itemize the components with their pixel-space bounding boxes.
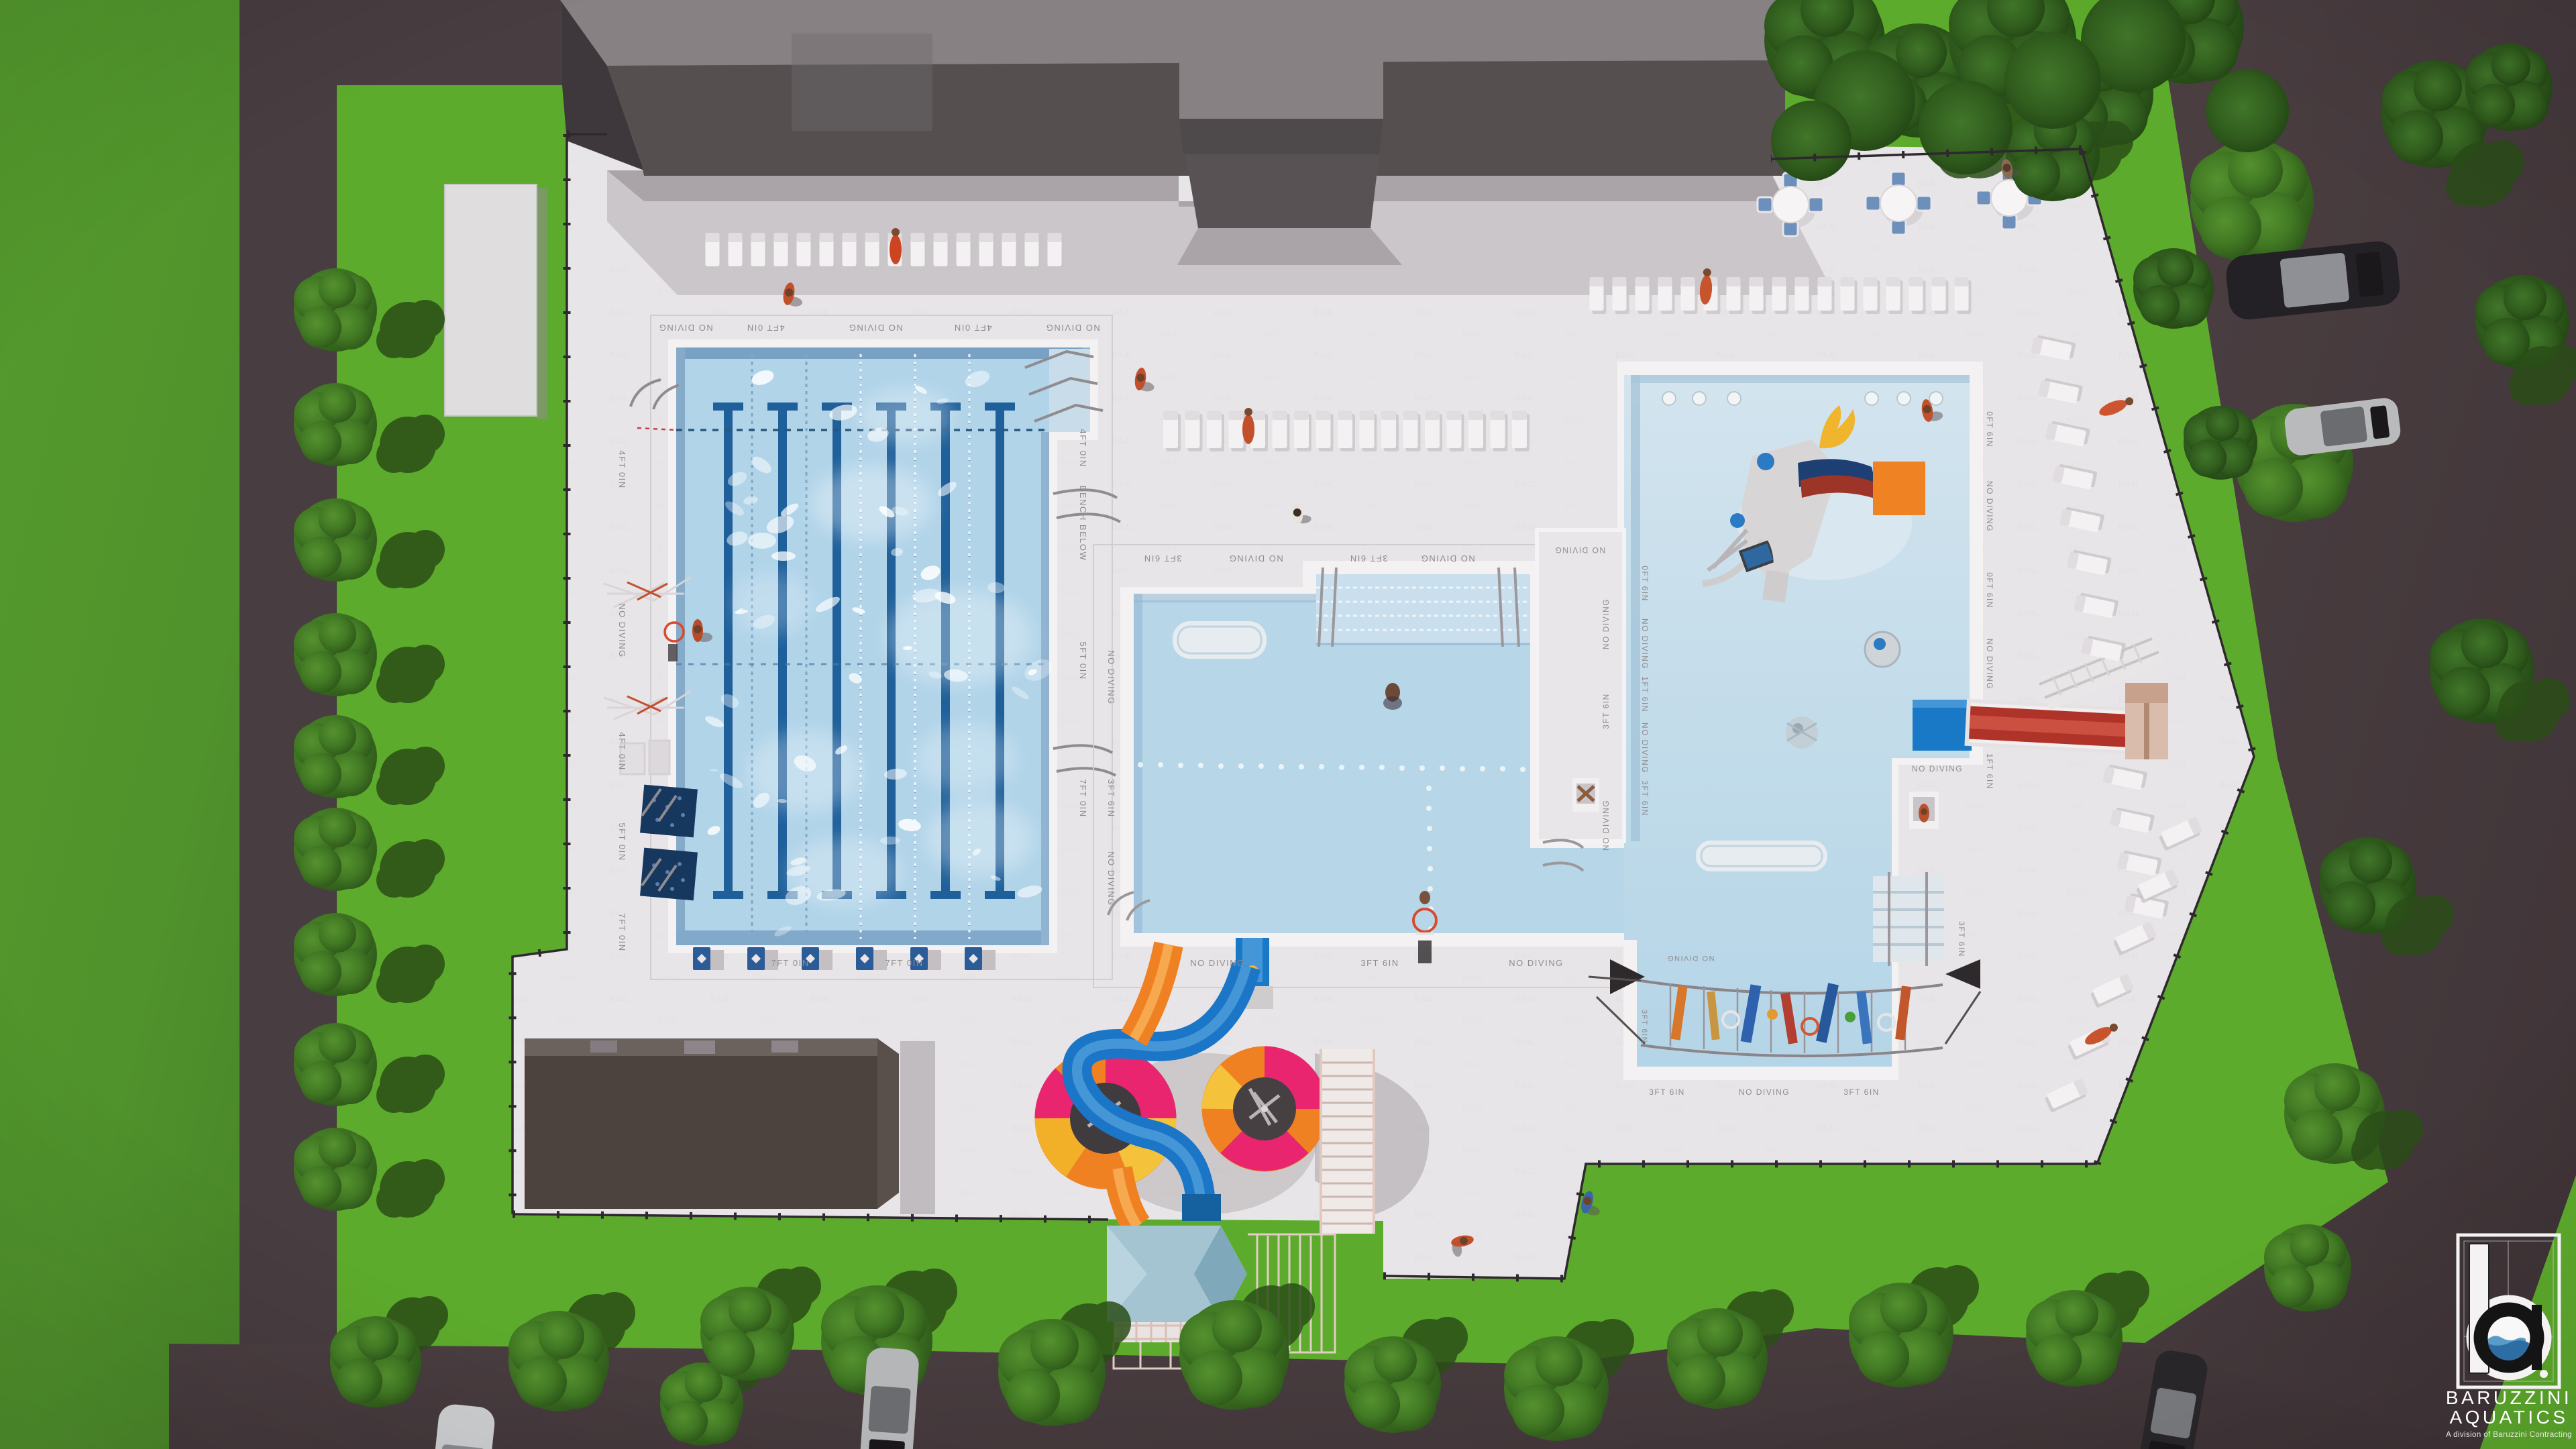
svg-text:BARUZZINI: BARUZZINI	[2446, 1387, 2572, 1408]
svg-text:AQUATICS: AQUATICS	[2449, 1407, 2568, 1428]
svg-text:A division of Baruzzini Contra: A division of Baruzzini Contracting	[2446, 1431, 2572, 1439]
